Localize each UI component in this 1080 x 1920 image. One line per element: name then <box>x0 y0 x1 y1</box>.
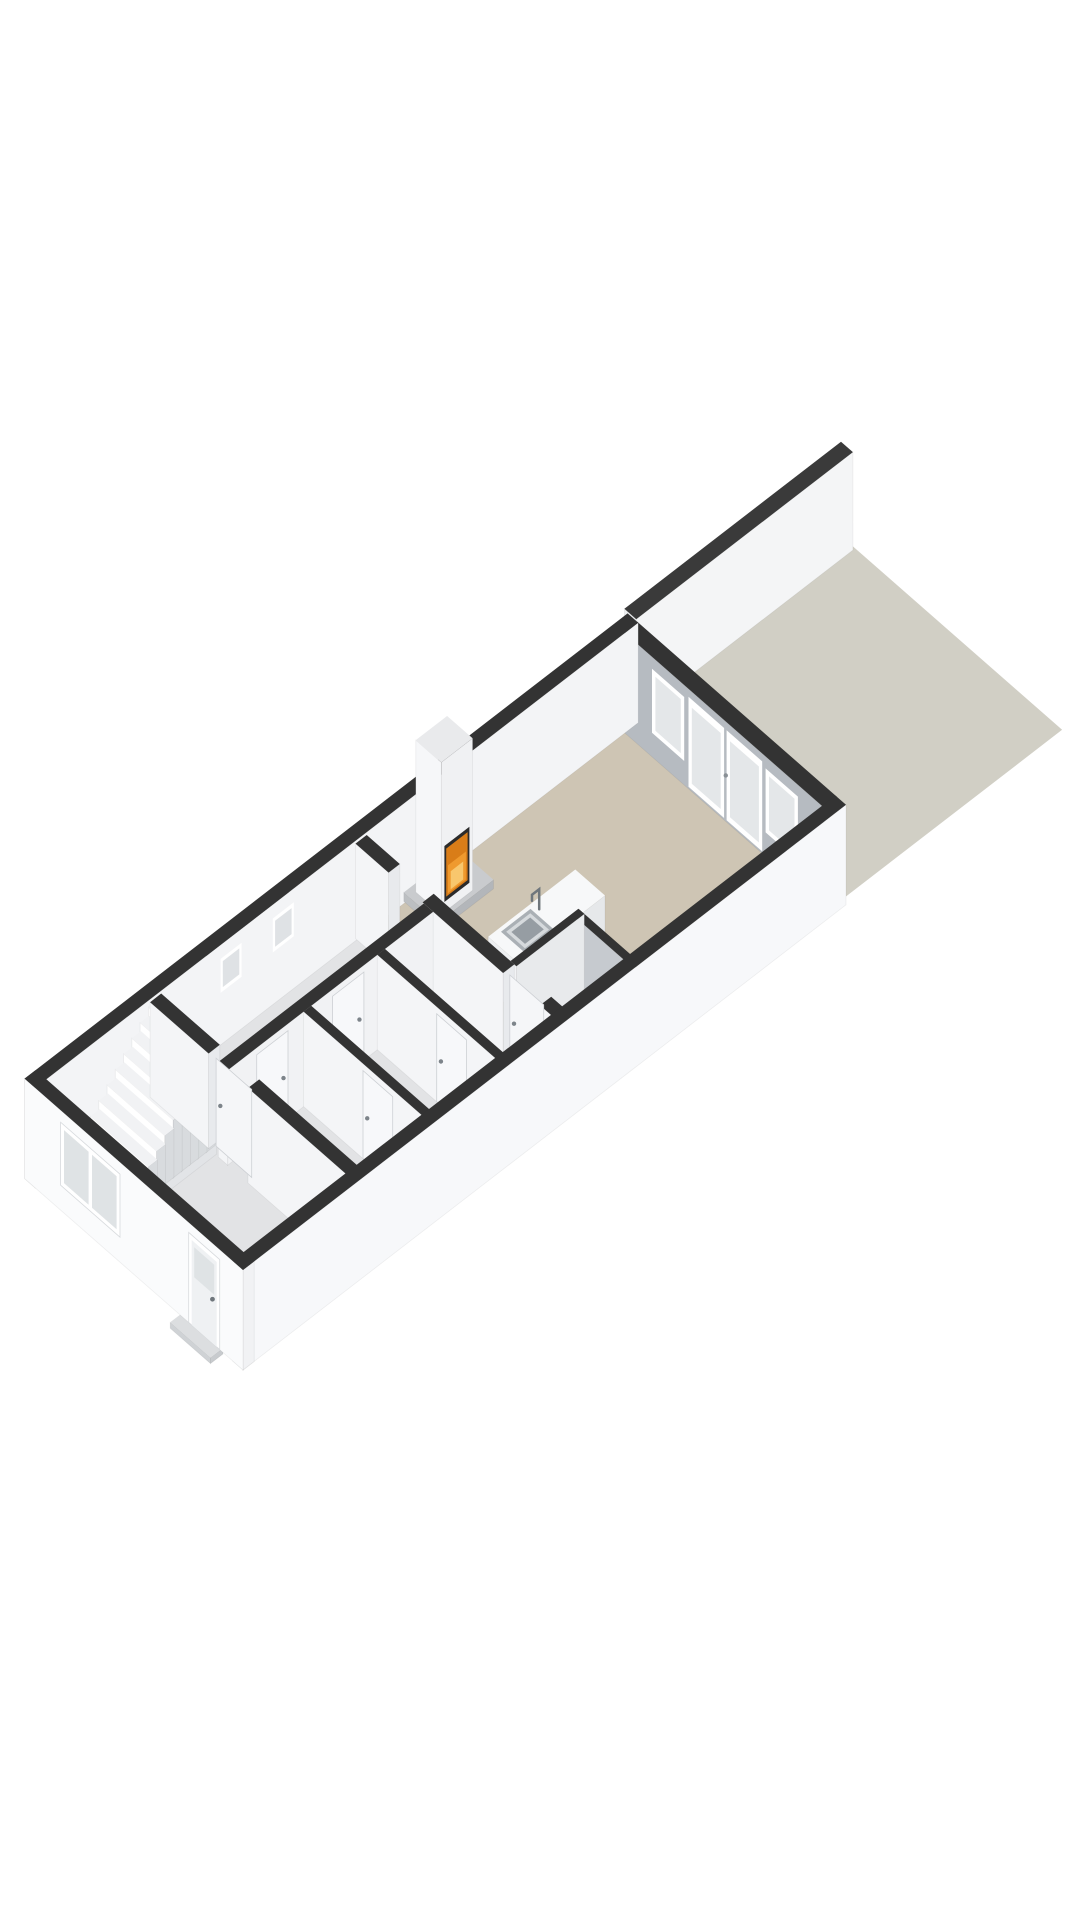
hall-door-handle <box>218 1104 222 1108</box>
fireplace-chimney-face <box>416 740 442 914</box>
stair-tread-face <box>165 1129 174 1185</box>
front-door-handle <box>210 1297 215 1302</box>
back-door-handle <box>724 773 728 777</box>
floorplan-page <box>0 0 1080 1920</box>
storage-door-handle <box>439 1059 443 1063</box>
corridor-door-handle <box>357 1017 361 1021</box>
kitchen-door-handle <box>512 1021 516 1025</box>
corridor-door-handle <box>281 1076 285 1080</box>
floor-plan-3d-render <box>0 0 1080 1920</box>
toilet-door-handle <box>365 1116 369 1120</box>
front-facade-wall-face <box>243 1261 254 1370</box>
